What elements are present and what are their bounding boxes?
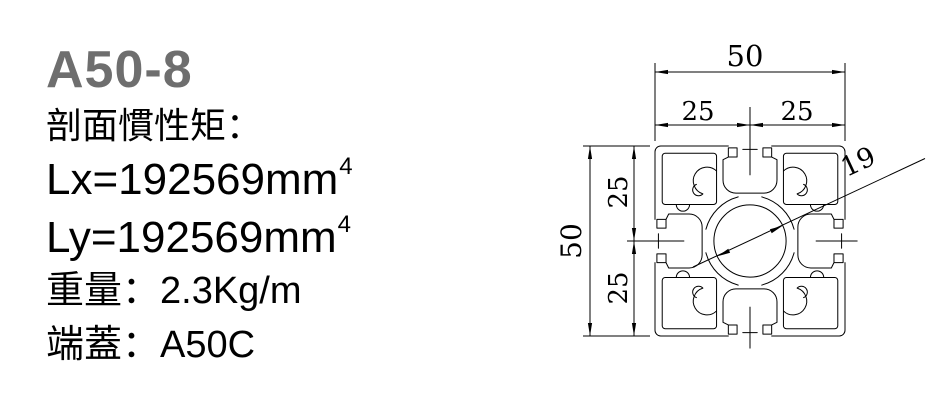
t-slot-left: [643, 214, 702, 268]
dim-text-width-left-half: 25: [681, 97, 714, 127]
cross-section-drawing: 50 25 25 50 25 25 19: [0, 0, 940, 405]
dim-text-overall-height: 50: [555, 223, 588, 259]
dim-text-height-bottom-half: 25: [604, 271, 634, 304]
pocket-top-right: [762, 153, 838, 229]
catalog-page: A50-8 剖面慣性矩： Lx=192569mm4 Ly=192569mm4 重…: [0, 0, 940, 405]
t-slot-bottom: [723, 289, 777, 348]
pocket-top-left: [662, 153, 738, 229]
t-slot-right: [798, 214, 857, 268]
pocket-bottom-right: [762, 253, 838, 329]
dim-text-overall-width: 50: [727, 39, 764, 73]
dim-text-height-top-half: 25: [604, 175, 634, 208]
dim-text-width-right-half: 25: [780, 97, 813, 127]
extrusion-profile: [643, 134, 857, 348]
t-slot-top: [723, 134, 777, 193]
center-bore-circle: [714, 205, 786, 277]
extension-lines-left: [583, 146, 650, 336]
pocket-bottom-left: [662, 253, 738, 329]
